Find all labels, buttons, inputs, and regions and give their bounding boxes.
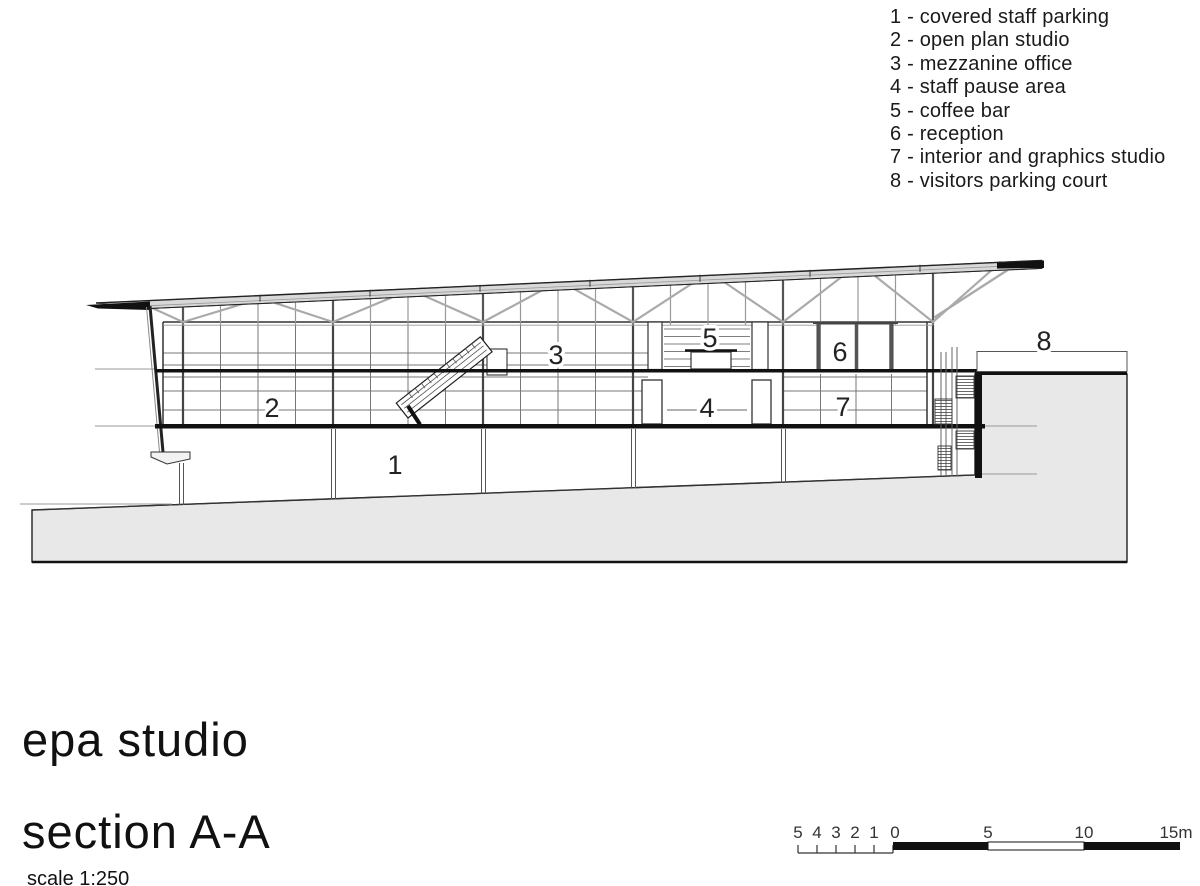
scale-bar-seg-2 [988,842,1084,850]
scale-minor-5: 5 [793,823,802,842]
retaining-wall [975,372,982,479]
room-label-5: 5 [702,323,717,353]
project-title: epa studio [22,712,271,767]
scale-zero: 0 [890,823,899,842]
scale-bar-seg-1 [893,842,988,850]
drawing-sheet: 1 - covered staff parking 2 - open plan … [0,0,1200,886]
scale-minor-3: 3 [831,823,840,842]
cantilever-strut [935,267,1013,318]
scale-minor-1: 1 [869,823,878,842]
room-label-6: 6 [832,337,847,367]
room-label-7: 7 [835,392,850,422]
terrain [32,374,1127,562]
roof [86,260,1044,310]
room-label-4: 4 [699,393,714,423]
room-label-1: 1 [387,450,402,480]
mezzanine-slab [155,369,978,373]
scale-bar-seg-3 [1084,842,1180,850]
scale-minor-2: 2 [850,823,859,842]
scale-mid-10: 10 [1075,823,1094,842]
court-curb [977,352,1127,372]
room-label-8: 8 [1036,326,1051,356]
scale-end-15m: 15m [1159,823,1192,842]
reception-windows [813,323,898,371]
room-label-2: 2 [264,393,279,423]
west-foot-column [180,463,184,505]
right-stairs [935,347,974,476]
studio-floor-slab [155,424,985,429]
court-slab [975,372,1127,376]
mezzanine-stair [396,337,507,425]
coffee-counter [691,352,731,369]
room-label-3: 3 [548,340,563,370]
scale-mid-5: 5 [983,823,992,842]
gutter [151,452,190,464]
scale-ruler [798,845,893,853]
scale-minor-4: 4 [812,823,821,842]
drawing-title: section A-A [22,804,271,859]
scale-bar: 5 4 3 2 1 0 5 10 15m [793,823,1192,853]
title-block: epa studio section A-A scale 1:250 [22,712,271,886]
scale-note: scale 1:250 [27,868,271,886]
